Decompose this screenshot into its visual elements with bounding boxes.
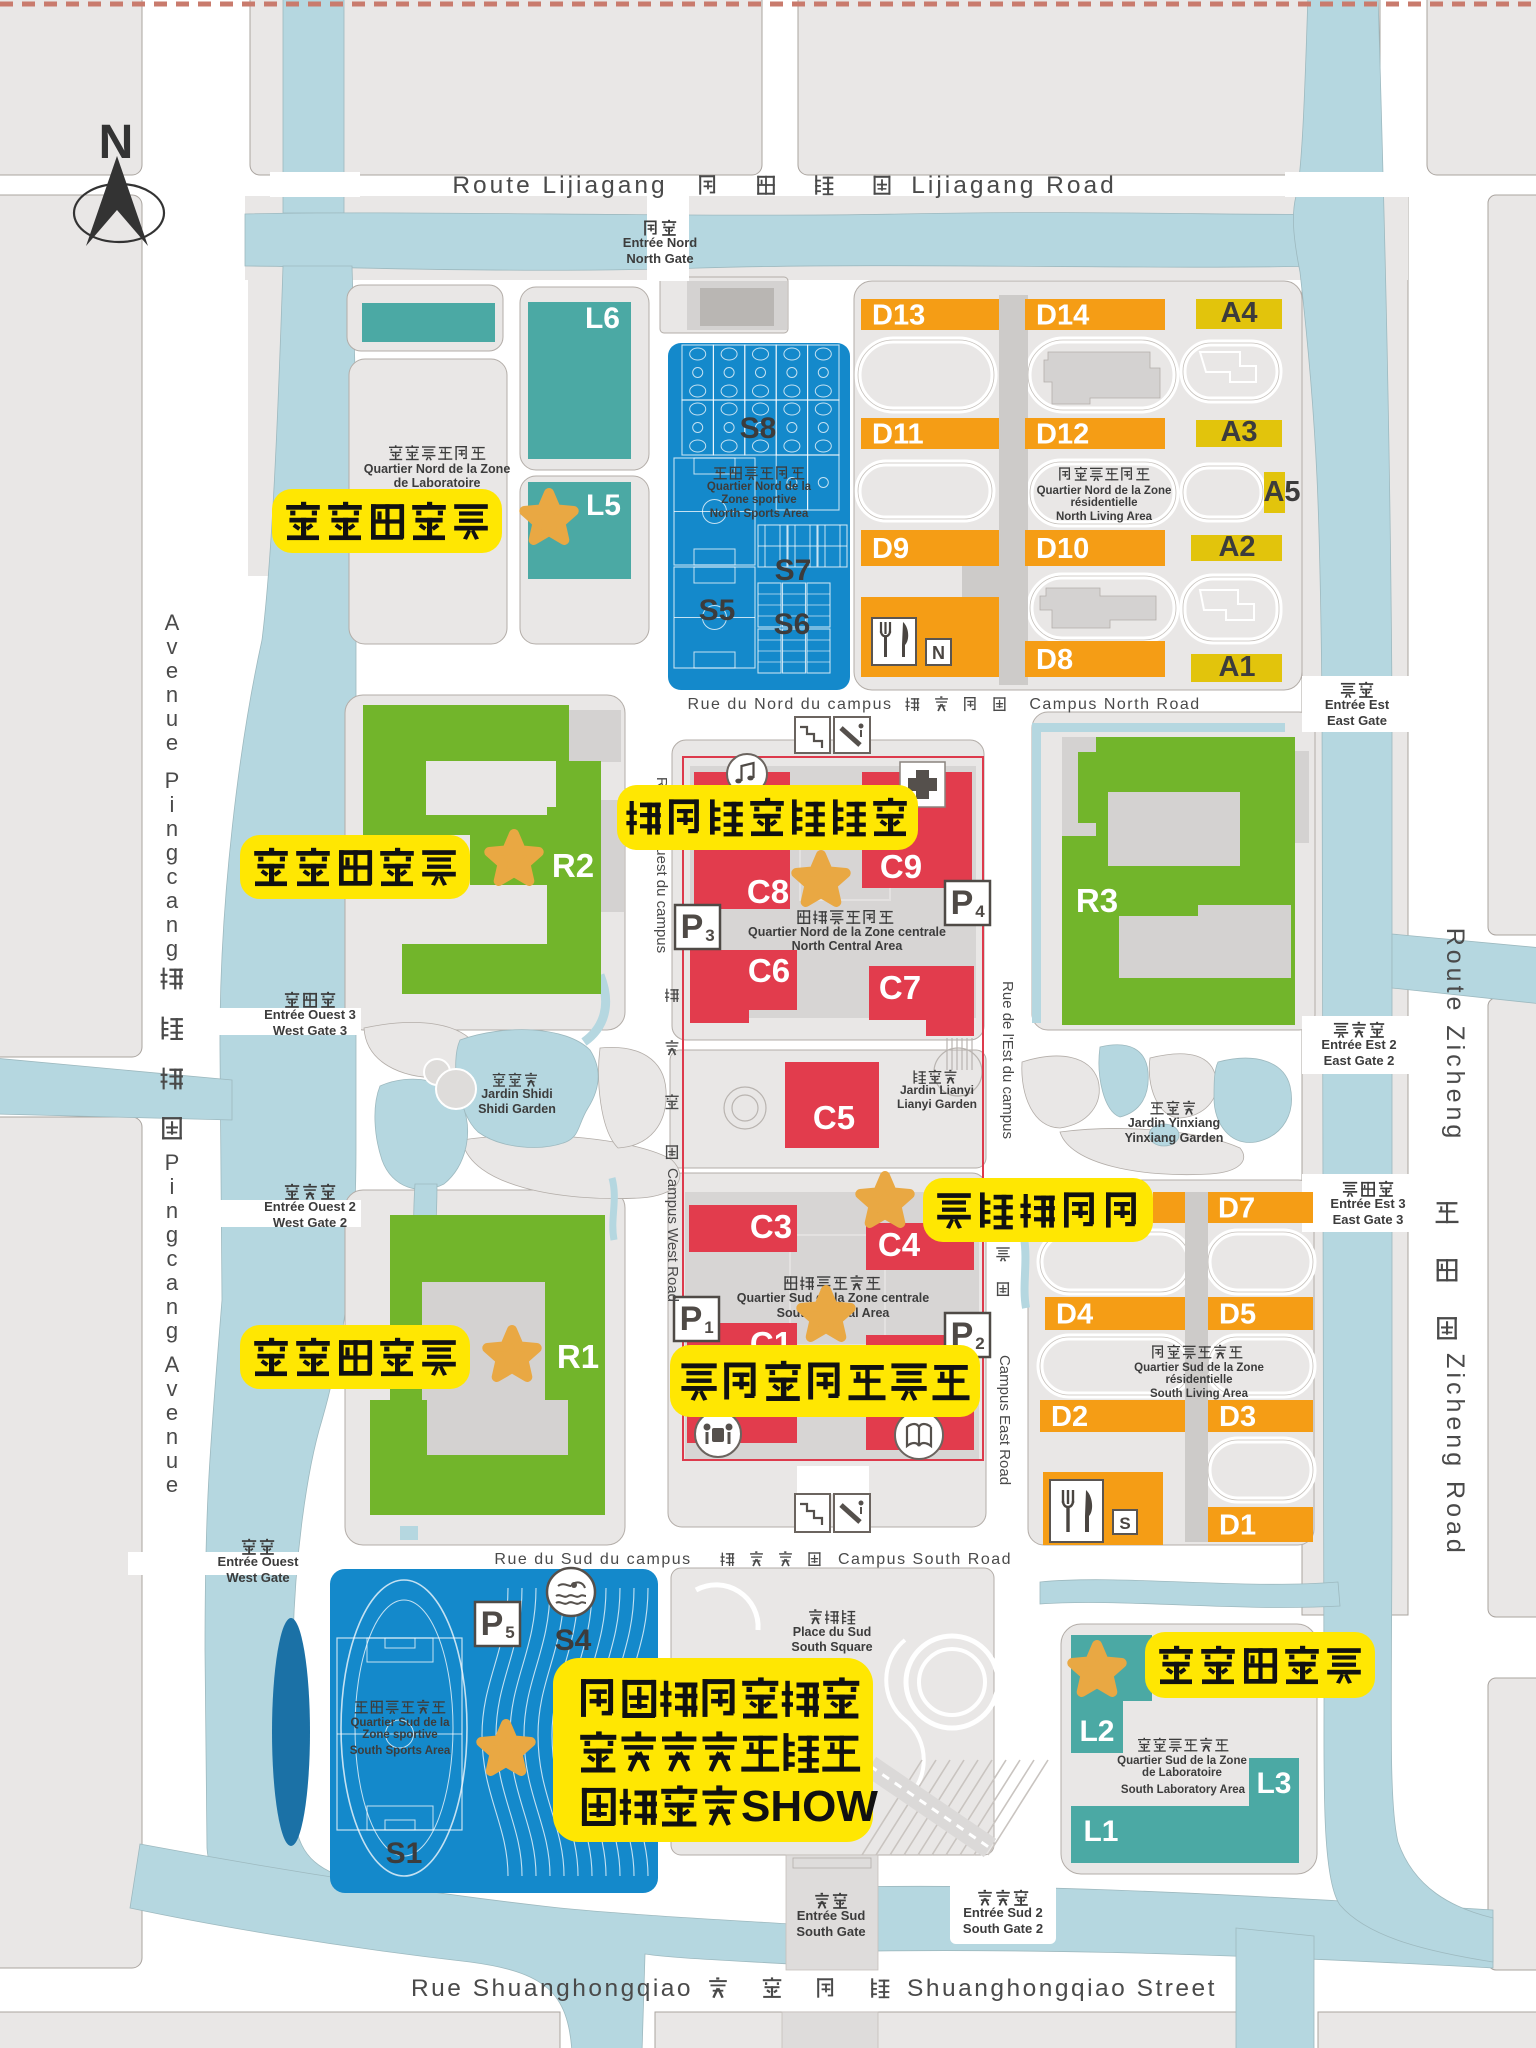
svg-text:i: i xyxy=(170,1174,175,1199)
svg-text:Route Zicheng: Route Zicheng xyxy=(1441,928,1469,1143)
svg-text:Jardin Yinxiang: Jardin Yinxiang xyxy=(1128,1116,1220,1130)
svg-text:n: n xyxy=(166,1424,178,1449)
svg-text:A1: A1 xyxy=(1218,651,1255,683)
svg-text:D14: D14 xyxy=(1036,300,1089,332)
svg-text:C3: C3 xyxy=(750,1208,792,1245)
svg-text:Place du Sud: Place du Sud xyxy=(793,1625,872,1639)
svg-text:D1: D1 xyxy=(1219,1510,1256,1542)
svg-text:Quartier Sud de la Zone: Quartier Sud de la Zone xyxy=(1117,1755,1247,1767)
svg-text:East Gate 2: East Gate 2 xyxy=(1324,1053,1395,1068)
svg-text:u: u xyxy=(166,1448,178,1473)
svg-text:Entrée Est: Entrée Est xyxy=(1325,697,1390,712)
svg-text:n: n xyxy=(166,912,178,937)
svg-text:résidentielle: résidentielle xyxy=(1070,497,1137,509)
svg-text:Rue du Nord du campus: Rue du Nord du campus xyxy=(688,696,893,713)
svg-text:g: g xyxy=(166,1318,178,1343)
svg-text:Campus West Road: Campus West Road xyxy=(664,1168,681,1302)
svg-text:D5: D5 xyxy=(1219,1299,1256,1331)
svg-text:Entrée Nord: Entrée Nord xyxy=(623,235,697,250)
svg-text:3: 3 xyxy=(705,926,714,945)
svg-text:de Laboratoire: de Laboratoire xyxy=(1142,1767,1222,1779)
svg-text:West Gate 2: West Gate 2 xyxy=(273,1215,347,1230)
svg-text:C7: C7 xyxy=(879,969,921,1006)
svg-text:C6: C6 xyxy=(748,952,790,989)
svg-text:4: 4 xyxy=(975,902,985,921)
svg-text:v: v xyxy=(167,634,178,659)
svg-text:Campus East Road: Campus East Road xyxy=(996,1355,1013,1485)
svg-text:n: n xyxy=(166,1294,178,1319)
svg-text:P: P xyxy=(951,884,974,922)
svg-text:Quartier Nord de la Zone centr: Quartier Nord de la Zone centrale xyxy=(748,925,946,939)
svg-text:a: a xyxy=(166,888,179,913)
svg-text:North Living Area: North Living Area xyxy=(1056,511,1153,523)
svg-text:South Gate 2: South Gate 2 xyxy=(963,1921,1043,1936)
svg-text:Rue de l'Est du campus: Rue de l'Est du campus xyxy=(999,981,1016,1139)
svg-text:South Laboratory Area: South Laboratory Area xyxy=(1121,1784,1246,1796)
svg-text:Route Lijiagang: Route Lijiagang xyxy=(452,172,667,199)
svg-text:Zone sportive: Zone sportive xyxy=(362,1729,437,1741)
svg-text:D2: D2 xyxy=(1051,1401,1088,1433)
svg-text:S4: S4 xyxy=(555,1624,592,1657)
svg-text:i: i xyxy=(170,792,175,817)
svg-text:D3: D3 xyxy=(1219,1401,1256,1433)
svg-text:a: a xyxy=(166,1270,179,1295)
svg-text:Shuanghongqiao Street: Shuanghongqiao Street xyxy=(907,1975,1217,2002)
svg-text:5: 5 xyxy=(505,1623,514,1642)
svg-text:Entrée Est 3: Entrée Est 3 xyxy=(1330,1196,1405,1211)
svg-text:D4: D4 xyxy=(1056,1299,1093,1331)
svg-text:South Living Area: South Living Area xyxy=(1150,1388,1249,1400)
svg-text:2: 2 xyxy=(975,1334,984,1353)
svg-text:g: g xyxy=(166,936,178,961)
svg-text:P: P xyxy=(681,908,704,946)
svg-text:L6: L6 xyxy=(585,302,620,335)
svg-text:S: S xyxy=(1119,1514,1130,1533)
svg-text:D12: D12 xyxy=(1036,419,1089,451)
svg-text:East Gate: East Gate xyxy=(1327,713,1387,728)
svg-text:Entrée Sud 2: Entrée Sud 2 xyxy=(963,1905,1042,1920)
svg-text:n: n xyxy=(166,816,178,841)
svg-text:Entrée Ouest: Entrée Ouest xyxy=(218,1554,300,1569)
svg-text:P: P xyxy=(680,1300,703,1338)
svg-text:Shidi Garden: Shidi Garden xyxy=(478,1102,556,1116)
svg-text:North Central Area: North Central Area xyxy=(792,939,904,953)
svg-text:Quartier Sud de la: Quartier Sud de la xyxy=(350,1717,450,1729)
svg-text:R2: R2 xyxy=(552,847,594,884)
svg-text:P: P xyxy=(481,1605,504,1643)
svg-text:e: e xyxy=(166,1472,178,1497)
svg-text:Yinxiang Garden: Yinxiang Garden xyxy=(1125,1131,1224,1145)
svg-text:D11: D11 xyxy=(872,419,924,451)
svg-text:1: 1 xyxy=(704,1318,713,1337)
svg-text:Quartier Nord de la Zone: Quartier Nord de la Zone xyxy=(364,462,511,476)
svg-text:D13: D13 xyxy=(872,300,925,332)
svg-text:Lijiagang Road: Lijiagang Road xyxy=(911,172,1116,199)
svg-text:A5: A5 xyxy=(1263,476,1300,508)
svg-text:g: g xyxy=(166,840,178,865)
svg-text:Quartier Nord de la Zone: Quartier Nord de la Zone xyxy=(1037,485,1172,497)
svg-text:Entrée Est 2: Entrée Est 2 xyxy=(1321,1037,1396,1052)
svg-text:Entrée Ouest 3: Entrée Ouest 3 xyxy=(264,1007,356,1022)
svg-text:West Gate: West Gate xyxy=(226,1570,289,1585)
svg-text:e: e xyxy=(166,730,178,755)
svg-text:West Gate 3: West Gate 3 xyxy=(273,1023,347,1038)
svg-text:C5: C5 xyxy=(813,1099,855,1136)
svg-text:Campus South Road: Campus South Road xyxy=(838,1551,1012,1568)
svg-text:Zicheng Road: Zicheng Road xyxy=(1441,1353,1469,1557)
svg-text:R3: R3 xyxy=(1076,882,1118,919)
svg-text:L5: L5 xyxy=(586,489,621,522)
svg-text:S6: S6 xyxy=(774,608,811,641)
svg-text:C8: C8 xyxy=(747,873,789,910)
svg-text:résidentielle: résidentielle xyxy=(1165,1374,1232,1386)
svg-text:Entrée Ouest 2: Entrée Ouest 2 xyxy=(264,1199,356,1214)
svg-text:n: n xyxy=(166,1198,178,1223)
svg-text:Campus North Road: Campus North Road xyxy=(1029,696,1200,713)
svg-text:L3: L3 xyxy=(1256,1767,1291,1800)
svg-text:e: e xyxy=(166,658,178,683)
svg-text:A2: A2 xyxy=(1218,531,1255,563)
svg-text:North Gate: North Gate xyxy=(626,251,693,266)
svg-text:Zone sportive: Zone sportive xyxy=(721,494,796,506)
svg-text:South Sports Area: South Sports Area xyxy=(350,1745,451,1757)
svg-text:SHOW: SHOW xyxy=(741,1782,878,1831)
svg-text:Entrée Sud: Entrée Sud xyxy=(797,1908,866,1923)
svg-text:Lianyi Garden: Lianyi Garden xyxy=(897,1097,977,1111)
svg-text:D8: D8 xyxy=(1036,644,1073,676)
svg-text:R1: R1 xyxy=(557,1338,599,1375)
svg-text:C4: C4 xyxy=(878,1226,921,1263)
svg-text:D9: D9 xyxy=(872,533,909,565)
svg-text:South Square: South Square xyxy=(791,1640,872,1654)
svg-text:n: n xyxy=(166,682,178,707)
svg-text:S8: S8 xyxy=(740,412,777,445)
svg-text:Quartier Sud de la Zone: Quartier Sud de la Zone xyxy=(1134,1362,1264,1374)
svg-text:N: N xyxy=(932,643,945,663)
svg-text:u: u xyxy=(166,706,178,731)
svg-text:D7: D7 xyxy=(1218,1193,1255,1225)
svg-text:de Laboratoire: de Laboratoire xyxy=(394,476,481,490)
svg-text:c: c xyxy=(167,1246,178,1271)
svg-text:S1: S1 xyxy=(386,1837,423,1870)
svg-text:Quartier Nord de la: Quartier Nord de la xyxy=(707,481,812,493)
svg-text:Jardin Lianyi: Jardin Lianyi xyxy=(900,1083,974,1097)
svg-text:Jardin Shidi: Jardin Shidi xyxy=(481,1087,553,1101)
svg-text:C9: C9 xyxy=(880,848,922,885)
svg-text:A4: A4 xyxy=(1220,297,1257,329)
svg-text:Rue Shuanghongqiao: Rue Shuanghongqiao xyxy=(411,1975,693,2002)
svg-text:Rue du Sud du campus: Rue du Sud du campus xyxy=(494,1551,691,1568)
svg-text:A3: A3 xyxy=(1220,416,1257,448)
svg-text:S7: S7 xyxy=(775,554,812,587)
svg-text:c: c xyxy=(167,864,178,889)
svg-text:A: A xyxy=(165,1352,180,1377)
svg-text:S5: S5 xyxy=(699,594,736,627)
svg-text:P: P xyxy=(165,768,180,793)
svg-text:A: A xyxy=(165,610,180,635)
svg-text:g: g xyxy=(166,1222,178,1247)
svg-text:v: v xyxy=(167,1376,178,1401)
svg-text:South Gate: South Gate xyxy=(796,1924,865,1939)
svg-text:North Sports Area: North Sports Area xyxy=(710,508,809,520)
svg-text:East Gate 3: East Gate 3 xyxy=(1333,1212,1404,1227)
svg-text:D10: D10 xyxy=(1036,533,1089,565)
svg-text:L2: L2 xyxy=(1079,1715,1114,1748)
svg-text:L1: L1 xyxy=(1083,1815,1118,1848)
svg-text:P: P xyxy=(165,1150,180,1175)
svg-text:e: e xyxy=(166,1400,178,1425)
